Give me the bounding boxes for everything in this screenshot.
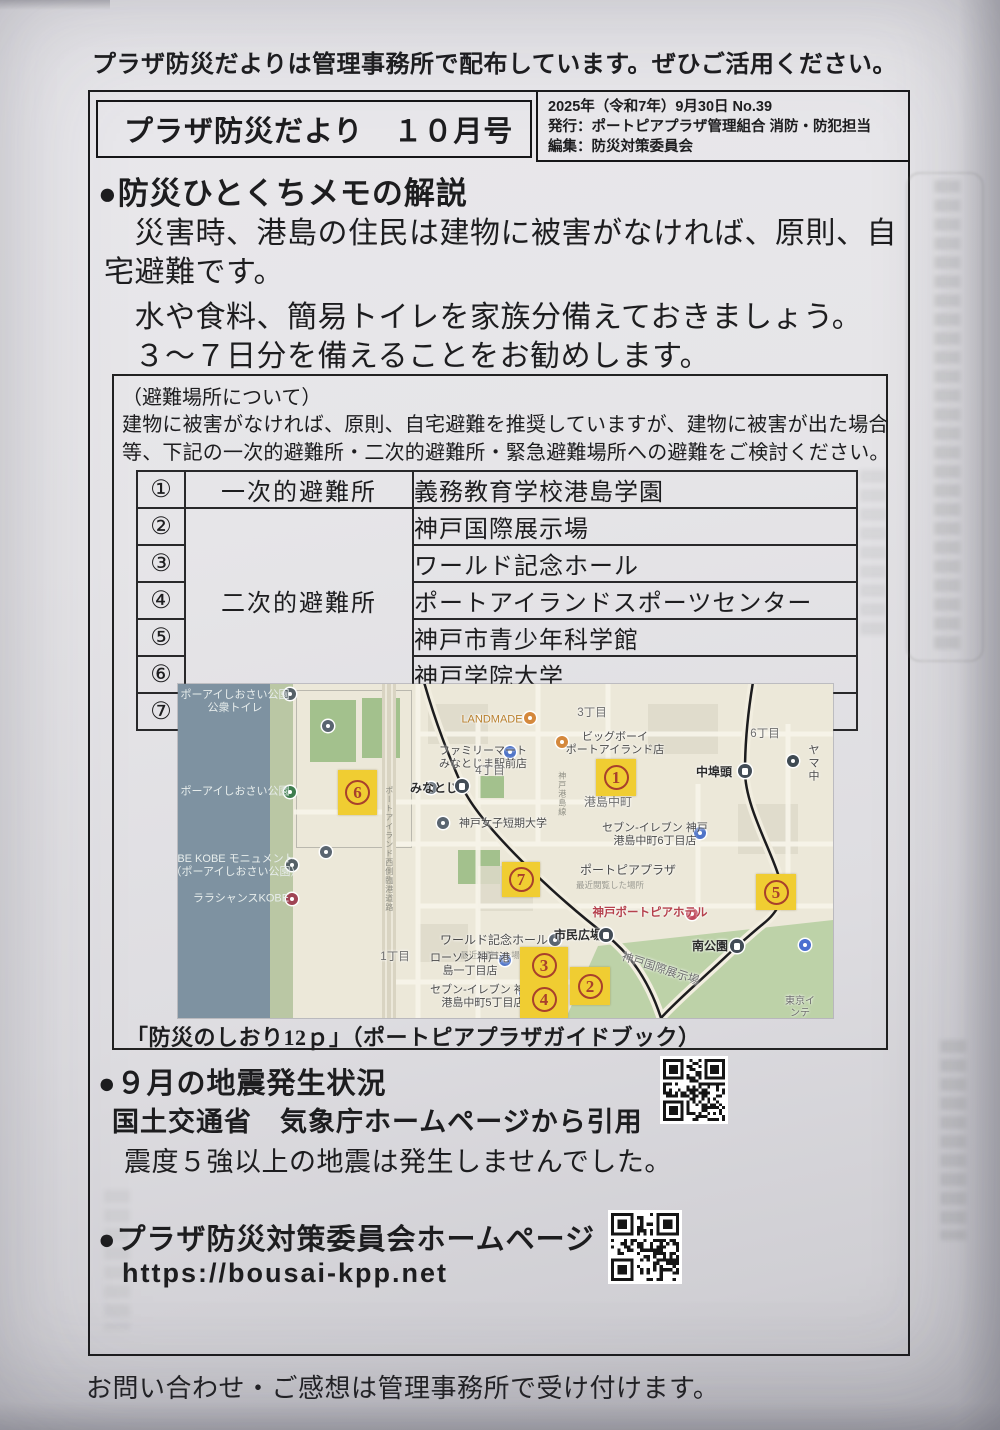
map-label: BE KOBE モニュメント （ポーアイしおさい公園） (178, 853, 302, 879)
marker-number: 4 (532, 987, 557, 1012)
memo-line-1: 災害時、港島の住民は建物に被害がなければ、原則、自 (104, 208, 897, 252)
row-number: ⑤ (137, 619, 185, 656)
shelter-info-box: （避難場所について） 建物に被害がなければ、原則、自宅避難を推奨していますが、建… (112, 374, 888, 1050)
map-label: ビッグボーイ ポートアイランド店 (566, 731, 664, 757)
train-station-icon (730, 939, 744, 953)
map-poi-icon (320, 846, 332, 858)
map-label: 6丁目 (750, 728, 779, 742)
map-label: LANDMADE (461, 714, 522, 727)
map-label: ララシャンスKOBE (193, 893, 289, 906)
category-primary: 一次的避難所 (185, 471, 413, 508)
issue-info-box: 2025年（令和7年）9月30日 No.39 発行：ポートピアプラザ管理組合 消… (536, 92, 910, 162)
shelter-desc-1: 建物に被害がなければ、原則、自宅避難を推奨していますが、建物に被害が出た場合 (122, 408, 889, 437)
map-label: 神戸女子短期大学 (459, 818, 547, 831)
quake-section-heading: ●９月の地震発生状況 (98, 1060, 387, 1102)
marker-number: 1 (604, 765, 629, 790)
quake-source-line: 国土交通省 気象庁ホームページから引用 (112, 1100, 643, 1139)
map-label: 市民広場 (554, 928, 602, 942)
marker-number: 3 (532, 953, 557, 978)
shelter-desc-2: 等、下記の一次的避難所・二次的避難所・緊急避難場所への避難をご検討ください。 (122, 436, 890, 465)
map-label: セブン-イレブン 神戸 港島中町6丁目店 (602, 822, 708, 848)
memo-line-2: 宅避難です。 (104, 247, 284, 291)
map-poi-icon (322, 720, 334, 732)
map-label: ワールド記念ホール (440, 933, 548, 947)
photo-edge-bottom (0, 1402, 1000, 1430)
photo-edge-right (958, 0, 1000, 1430)
quake-qr-code (660, 1056, 728, 1124)
map-label: ポーアイしおさい公園 公衆トイレ (180, 689, 289, 715)
map-label: 東京インテ (784, 996, 817, 1018)
marker-number: 5 (764, 880, 789, 905)
row-number: ② (137, 508, 185, 545)
table-row: ① 一次的避難所 義務教育学校港島学園 (137, 471, 857, 508)
train-station-icon (599, 928, 613, 942)
issue-editor: 編集：防災対策委員会 (548, 137, 902, 157)
memo-line-3: 水や食料、簡易トイレを家族分備えておきましょう。 (104, 292, 862, 336)
map-poi-icon (524, 712, 536, 724)
row-number: ④ (137, 582, 185, 619)
map-poi-icon (437, 817, 449, 829)
map-label: 最近閲覧した場所 (576, 880, 644, 890)
shelter-name: 義務教育学校港島学園 (413, 471, 857, 508)
main-content-box: プラザ防災だより １０月号 2025年（令和7年）9月30日 No.39 発行：… (88, 90, 910, 1356)
map-label: 3丁目 (577, 707, 606, 721)
evacuation-site-marker: 2 (570, 967, 610, 1005)
map-label: ポーアイしおさい公園 (180, 786, 289, 799)
issue-date: 2025年（令和7年）9月30日 No.39 (548, 97, 902, 117)
map-label: 中埠頭 (696, 765, 732, 779)
issue-publisher: 発行：ポートピアプラザ管理組合 消防・防犯担当 (548, 117, 902, 137)
homepage-qr-code (608, 1210, 682, 1284)
evacuation-site-marker: 3 4 (520, 947, 568, 1018)
evacuation-site-marker: 1 (596, 759, 636, 796)
memo-section-heading: ●防災ひとくちメモの解説 (98, 168, 468, 213)
map-label: 神戸ポートピアホテル (593, 907, 708, 921)
marker-number: 7 (509, 867, 534, 892)
evacuation-site-marker: 7 (502, 862, 540, 897)
train-station-icon (738, 764, 752, 778)
map-label: ポートピアプラザ (580, 863, 676, 877)
top-notice: プラザ防災だよりは管理事務所で配布しています。ぜひご活用ください。 (92, 44, 897, 79)
row-number: ③ (137, 545, 185, 582)
map-label: ヤマ 中 (805, 745, 824, 784)
map-label: 神戸港島線 (557, 772, 566, 817)
photo-corner-shadow (0, 0, 110, 10)
shelter-name: ワールド記念ホール (413, 545, 857, 582)
map-label: 港島中町 (584, 795, 632, 809)
footer-note: お問い合わせ・ご感想は管理事務所で受け付けます。 (86, 1368, 719, 1405)
shelter-name: ポートアイランドスポーツセンター (413, 582, 857, 619)
map-label: 1丁目 (380, 951, 409, 965)
evacuation-site-marker: 5 (756, 874, 796, 910)
shelter-name: 神戸市青少年科学館 (413, 619, 857, 656)
evacuation-map: ポーアイしおさい公園 公衆トイレポーアイしおさい公園BE KOBE モニュメント… (178, 684, 833, 1018)
map-label: 南公園 (692, 939, 728, 953)
bleed-through-text (934, 180, 960, 650)
quake-result-line: 震度５強以上の地震は発生しませんでした。 (124, 1140, 672, 1179)
evacuation-site-marker: 6 (338, 770, 377, 815)
shelter-name: 神戸国際展示場 (413, 508, 857, 545)
map-label: ポートアイランド西側臨港道路 (384, 786, 393, 912)
newsletter-title-box: プラザ防災だより １０月号 (96, 100, 532, 158)
homepage-url: https://bousai-kpp.net (122, 1258, 448, 1289)
memo-line-4: ３～７日分を備えることをお勧めします。 (104, 331, 710, 375)
map-label: ローソン 神戸港 島一丁目店 (430, 952, 510, 978)
map-poi-icon (799, 939, 811, 951)
table-row: ② 二次的避難所 神戸国際展示場 (137, 508, 857, 545)
shelter-section-title: （避難場所について） (122, 381, 321, 410)
newsletter-page: プラザ防災だよりは管理事務所で配布しています。ぜひご活用ください。 プラザ防災だ… (0, 0, 1000, 1430)
map-caption: 「防災のしおり12ｐ」（ポートピアプラザガイドブック） (126, 1020, 701, 1052)
map-label: 4丁目 (475, 765, 504, 779)
newsletter-title: プラザ防災だより １０月号 (124, 108, 513, 150)
homepage-section-heading: ●プラザ防災対策委員会ホームページ (98, 1216, 595, 1258)
train-station-icon (455, 779, 469, 793)
category-secondary: 二次的避難所 (185, 508, 413, 693)
marker-number: 6 (345, 780, 370, 805)
row-number: ① (137, 471, 185, 508)
map-poi-icon (787, 755, 799, 767)
marker-number: 2 (578, 974, 603, 999)
